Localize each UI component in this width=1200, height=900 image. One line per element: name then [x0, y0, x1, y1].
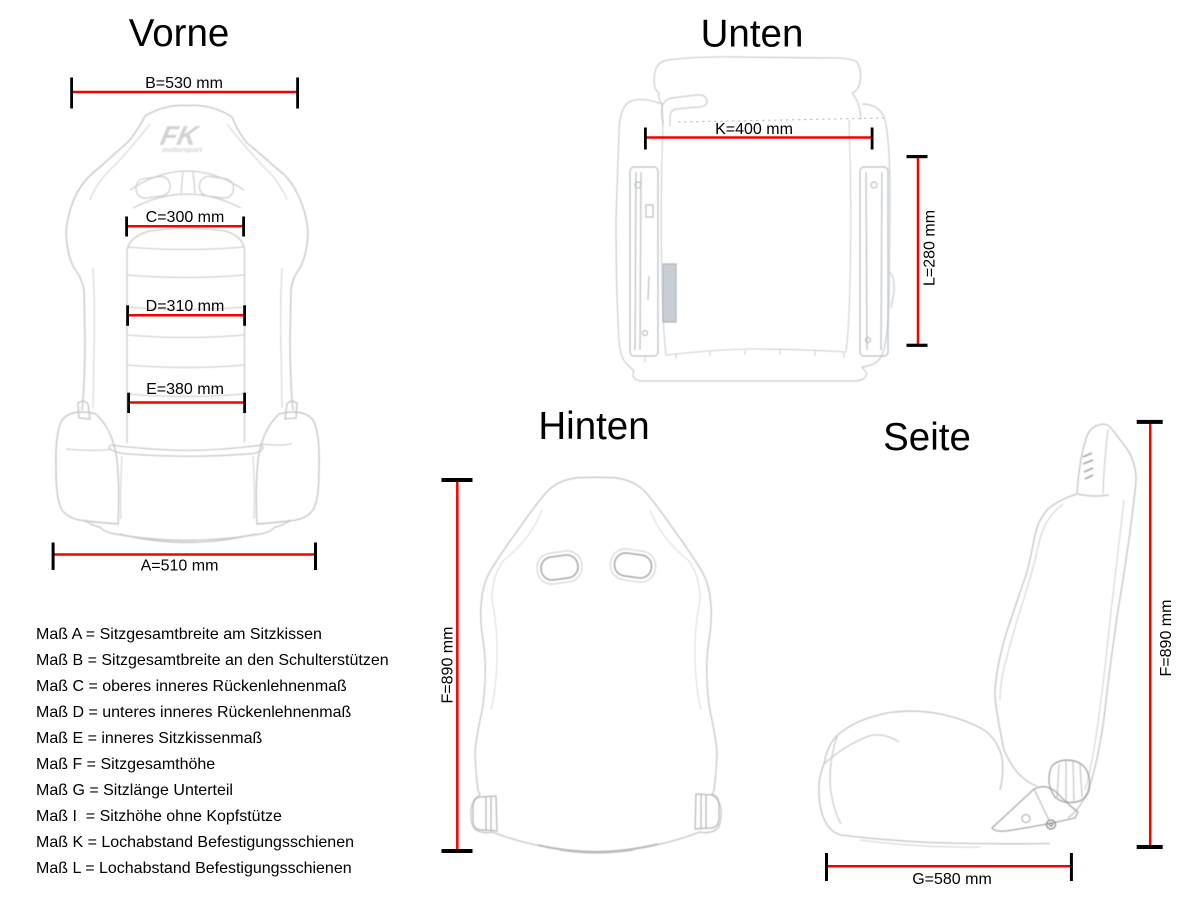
svg-text:E=380 mm: E=380 mm — [146, 381, 224, 398]
svg-text:F=890 mm: F=890 mm — [440, 627, 457, 704]
svg-text:F=890 mm: F=890 mm — [1158, 600, 1175, 677]
svg-text:L=280 mm: L=280 mm — [922, 210, 939, 286]
svg-text:Unten: Unten — [701, 13, 804, 56]
svg-text:A=510 mm: A=510 mm — [141, 558, 219, 575]
svg-text:Maß D = unteres inneres Rücken: Maß D = unteres inneres Rückenlehnenmaß — [36, 704, 351, 721]
svg-text:motorsport: motorsport — [161, 145, 203, 154]
svg-text:Maß B = Sitzgesamtbreite an de: Maß B = Sitzgesamtbreite an den Schulter… — [36, 652, 389, 669]
svg-text:K=400 mm: K=400 mm — [715, 121, 793, 138]
svg-text:G=580 mm: G=580 mm — [912, 871, 992, 888]
svg-text:Maß K = Lochabstand Befestigun: Maß K = Lochabstand Befestigungsschienen — [36, 834, 354, 851]
svg-text:Maß A = Sitzgesamtbreite am Si: Maß A = Sitzgesamtbreite am Sitzkissen — [36, 626, 322, 643]
svg-text:Maß G = Sitzlänge Unterteil: Maß G = Sitzlänge Unterteil — [36, 782, 233, 799]
svg-text:Maß L = Lochabstand Befestigun: Maß L = Lochabstand Befestigungsschienen — [36, 860, 352, 877]
svg-text:B=530 mm: B=530 mm — [145, 75, 223, 92]
svg-text:D=310 mm: D=310 mm — [146, 298, 225, 315]
svg-text:Maß E = inneres Sitzkissenmaß: Maß E = inneres Sitzkissenmaß — [36, 730, 263, 747]
svg-text:Hinten: Hinten — [538, 405, 649, 448]
svg-text:Vorne: Vorne — [129, 12, 230, 55]
svg-text:Seite: Seite — [883, 416, 971, 459]
svg-text:Maß I = Sitzhöhe ohne Kopfstü: Maß I = Sitzhöhe ohne Kopfstütze — [36, 808, 282, 825]
svg-text:Maß F = Sitzgesamthöhe: Maß F = Sitzgesamthöhe — [36, 756, 215, 773]
svg-text:Maß C = oberes inneres Rückenl: Maß C = oberes inneres Rückenlehnenmaß — [36, 678, 347, 695]
svg-text:C=300 mm: C=300 mm — [146, 209, 225, 226]
